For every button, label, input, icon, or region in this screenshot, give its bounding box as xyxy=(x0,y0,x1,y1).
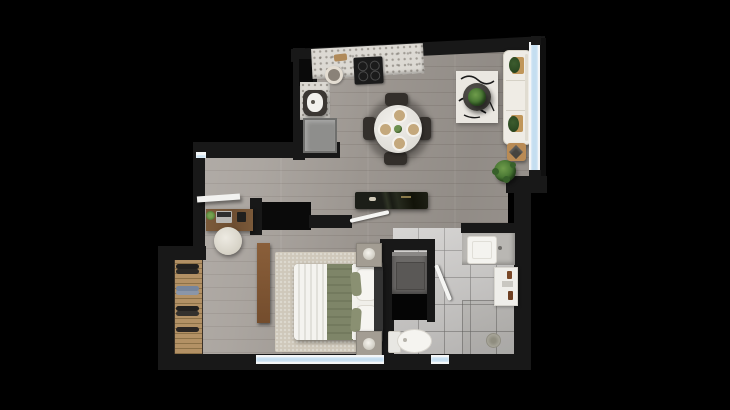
faucet-icon xyxy=(311,100,315,104)
floor-plant xyxy=(494,160,516,182)
nightstand xyxy=(356,331,382,357)
burner-icon xyxy=(358,61,369,72)
hall-window-tick xyxy=(196,152,206,159)
place-setting xyxy=(406,122,421,137)
bottle-icon xyxy=(507,271,512,279)
bowl xyxy=(325,66,343,84)
console-dish xyxy=(369,197,376,201)
window-glass xyxy=(196,155,206,158)
wardrobe-niche-dark xyxy=(262,202,311,230)
bed xyxy=(294,264,383,340)
wall-bedroom-top xyxy=(309,215,352,228)
washing-machine xyxy=(392,252,427,296)
bedroom-window xyxy=(256,355,384,364)
basin-inner xyxy=(472,241,492,259)
sofa-back xyxy=(525,54,528,141)
floor-plan-canvas xyxy=(0,0,730,410)
headboard xyxy=(374,262,383,342)
wall-laundry-top xyxy=(380,239,435,250)
shower-area xyxy=(462,300,516,359)
place-setting xyxy=(378,122,393,137)
window-frame xyxy=(431,362,449,364)
dining-area xyxy=(360,92,436,168)
toilet-flush-dot xyxy=(403,338,407,342)
bathroom-window xyxy=(431,355,449,364)
burner-icon xyxy=(370,70,381,81)
window-cap xyxy=(531,36,541,45)
hanger-row-icon xyxy=(176,264,199,269)
armrest-plant-icon xyxy=(509,57,520,73)
accent-pillow xyxy=(350,272,362,297)
armrest-plant-icon xyxy=(508,116,519,132)
window-frame xyxy=(256,362,384,364)
window-frame xyxy=(538,42,540,180)
place-setting xyxy=(392,108,407,123)
cutting-board xyxy=(334,53,348,61)
toilet xyxy=(388,329,432,353)
service-shaft xyxy=(392,294,427,320)
vanity xyxy=(462,233,515,265)
hanger-row-icon xyxy=(176,286,199,291)
desk-plant-icon xyxy=(206,211,215,220)
desk-chair xyxy=(214,227,242,255)
vanity-basin xyxy=(467,236,497,264)
dining-table xyxy=(374,105,422,153)
laptop-screen xyxy=(217,212,231,217)
centerpiece-plant-icon xyxy=(394,125,402,133)
nightstand xyxy=(356,243,382,267)
shower-drain xyxy=(486,333,501,348)
cabinet-tray xyxy=(502,281,513,287)
wall-closet-left xyxy=(158,248,174,366)
place-setting xyxy=(392,136,407,151)
bed-green-blanket xyxy=(327,264,353,340)
living-window xyxy=(529,42,540,180)
dining-chair xyxy=(384,152,407,165)
cooktop xyxy=(353,56,383,84)
storage-box xyxy=(237,212,246,222)
hanger-row-icon xyxy=(176,306,199,311)
side-table xyxy=(507,143,526,161)
bath-cabinet xyxy=(494,267,518,306)
foot-bench xyxy=(257,243,270,323)
console-gold-line xyxy=(401,196,411,198)
faucet-icon xyxy=(498,246,502,250)
wall-vanity-top xyxy=(461,223,515,233)
kitchen-sink xyxy=(303,90,327,116)
console-table xyxy=(355,192,428,209)
accent-pillow xyxy=(350,308,362,333)
kitchen-base-unit xyxy=(303,118,337,153)
bottle-icon xyxy=(508,291,513,300)
washer-panel xyxy=(396,262,425,290)
coffee-table-plant-icon xyxy=(468,88,486,106)
window-glass xyxy=(531,42,538,180)
burner-icon xyxy=(370,60,381,71)
wall-laundry-right xyxy=(427,250,435,322)
lamp-icon xyxy=(363,248,375,260)
sink-basin xyxy=(307,93,323,112)
bed-foot-sheet xyxy=(294,264,327,340)
decor-diamond-icon xyxy=(509,145,523,159)
laptop-icon xyxy=(216,211,232,223)
burner-icon xyxy=(358,71,369,82)
toilet-bowl xyxy=(397,329,432,353)
window-cap xyxy=(529,170,541,182)
lamp-icon xyxy=(363,338,375,350)
hanger-row-icon xyxy=(176,327,199,332)
